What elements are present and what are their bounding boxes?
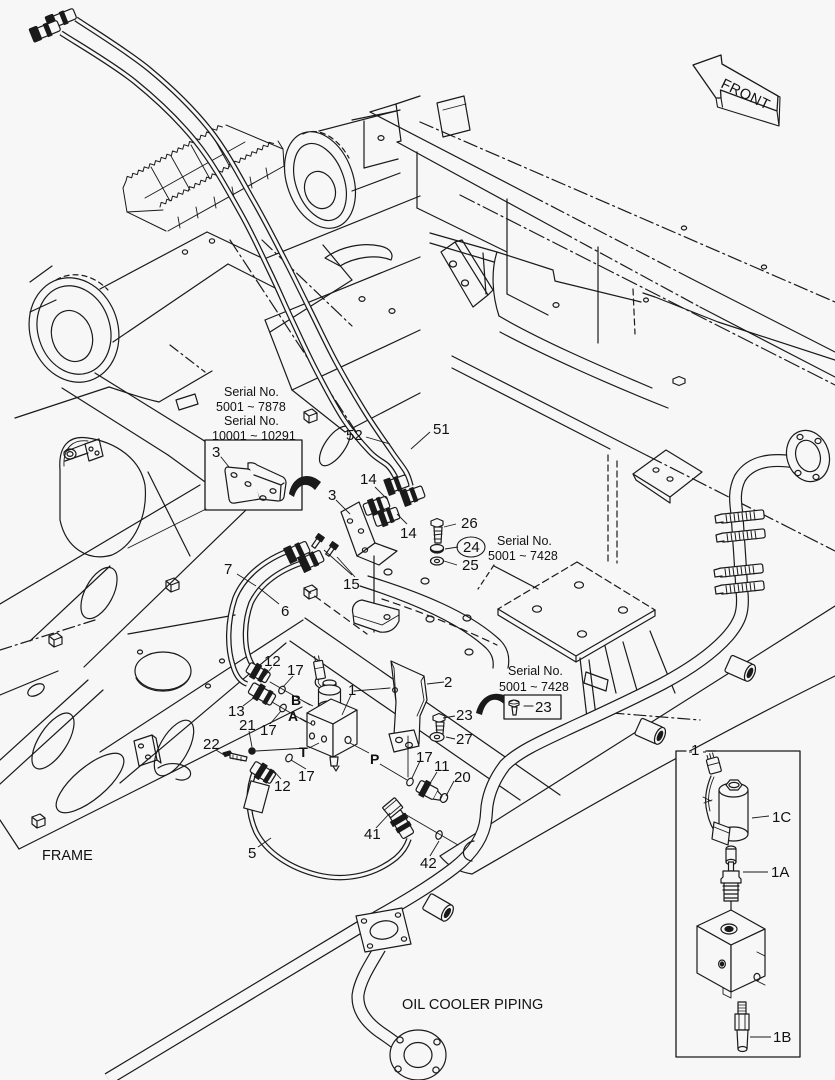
- svg-text:17: 17: [260, 722, 277, 739]
- svg-text:22: 22: [203, 736, 220, 753]
- svg-text:6: 6: [281, 603, 289, 620]
- svg-text:11: 11: [434, 758, 450, 775]
- svg-text:5001 ~ 7428: 5001 ~ 7428: [499, 680, 569, 694]
- svg-text:P: P: [370, 751, 379, 767]
- svg-text:17: 17: [287, 662, 304, 679]
- svg-text:2: 2: [444, 674, 452, 691]
- svg-text:Serial No.: Serial No.: [497, 534, 552, 548]
- svg-text:5: 5: [248, 845, 256, 862]
- svg-text:FRAME: FRAME: [42, 848, 93, 864]
- svg-text:B: B: [291, 692, 301, 708]
- svg-text:23: 23: [456, 707, 473, 724]
- svg-text:15: 15: [343, 576, 360, 593]
- svg-text:24: 24: [463, 539, 480, 556]
- svg-text:12: 12: [274, 778, 291, 795]
- svg-text:1: 1: [691, 742, 699, 759]
- svg-text:12: 12: [264, 653, 281, 670]
- svg-text:1B: 1B: [773, 1029, 791, 1046]
- svg-text:3: 3: [212, 444, 220, 461]
- svg-text:5001 ~ 7878: 5001 ~ 7878: [216, 400, 286, 414]
- svg-text:20: 20: [454, 769, 471, 786]
- svg-text:14: 14: [400, 525, 417, 542]
- svg-text:OIL COOLER PIPING: OIL COOLER PIPING: [402, 997, 543, 1013]
- svg-text:Serial No.: Serial No.: [224, 385, 279, 399]
- svg-text:3: 3: [328, 487, 336, 504]
- svg-text:Serial No.: Serial No.: [508, 664, 563, 678]
- svg-text:5001 ~ 7428: 5001 ~ 7428: [488, 549, 558, 563]
- svg-text:10001 ~ 10291: 10001 ~ 10291: [212, 429, 296, 443]
- svg-text:21: 21: [239, 717, 256, 734]
- svg-text:14: 14: [360, 471, 377, 488]
- svg-text:1: 1: [348, 682, 356, 699]
- svg-text:52: 52: [346, 427, 363, 444]
- svg-text:Serial No.: Serial No.: [224, 414, 279, 428]
- svg-text:27: 27: [456, 731, 473, 748]
- svg-text:25: 25: [462, 557, 479, 574]
- svg-text:42: 42: [420, 855, 437, 872]
- svg-text:T: T: [299, 744, 308, 760]
- svg-text:17: 17: [298, 768, 315, 785]
- svg-text:1C: 1C: [772, 809, 791, 826]
- svg-text:7: 7: [224, 561, 232, 578]
- svg-text:1A: 1A: [771, 864, 789, 881]
- svg-text:17: 17: [416, 749, 433, 766]
- svg-text:26: 26: [461, 515, 478, 532]
- svg-text:23: 23: [535, 699, 552, 716]
- svg-text:41: 41: [364, 826, 381, 843]
- svg-text:A: A: [288, 708, 298, 724]
- svg-text:51: 51: [433, 421, 450, 438]
